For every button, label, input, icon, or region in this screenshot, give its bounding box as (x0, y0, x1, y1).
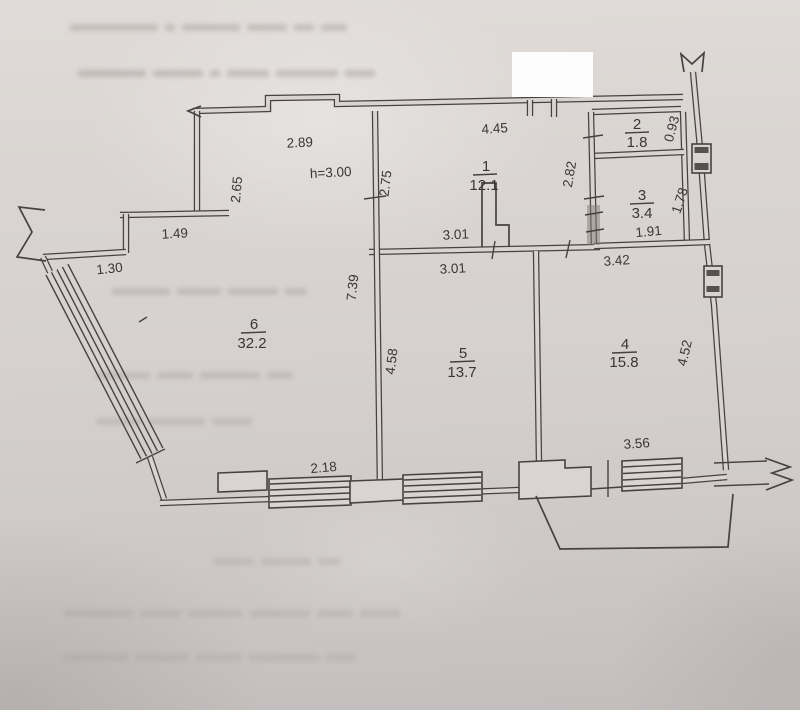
wall-step-block (218, 471, 267, 492)
redaction-box (512, 52, 593, 97)
room-5-label: 5 13.7 (447, 345, 476, 381)
duct-box (692, 144, 711, 173)
wall-pier (350, 479, 404, 503)
dim-room4-bottom-width: 3.56 (623, 435, 650, 452)
dim-room5-top-width: 3.01 (439, 260, 466, 276)
balcony-outline (536, 494, 733, 549)
wall-break-symbol (765, 458, 792, 490)
dim-room1-right-height: 2.82 (560, 160, 579, 188)
dim-room4-right-height: 4.52 (674, 338, 695, 367)
dim-room6-top-width: 2.89 (286, 134, 313, 150)
room-6-label: 6 32.2 (237, 316, 266, 352)
room-6-area: 32.2 (237, 335, 266, 352)
room-5-number: 5 (459, 345, 467, 362)
dim-room1-bottom-width: 3.01 (442, 226, 469, 242)
dim-room1-left-height: 2.75 (376, 169, 394, 197)
right-wall-extension (714, 461, 769, 486)
bottom-wall-details (218, 458, 682, 508)
dim-hall-step-width: 1.49 (161, 225, 188, 241)
wall-break-symbol (681, 53, 704, 72)
room-1-label: 1 12.1 (469, 158, 498, 194)
room-2-number: 2 (633, 116, 641, 133)
room-1-number: 1 (482, 158, 490, 175)
dim-room4-top-width: 3.42 (603, 252, 630, 269)
floor-plan-drawing: 1 12.1 2 1.8 3 3.4 4 15.8 5 13.7 6 32.2 (0, 0, 800, 710)
scanned-floor-plan-photo: 1 12.1 2 1.8 3 3.4 4 15.8 5 13.7 6 32.2 (0, 0, 800, 710)
balcony-door-threshold (591, 487, 622, 489)
dim-room6-right-height: 7.39 (344, 274, 362, 302)
room-2-label: 2 1.8 (625, 116, 649, 151)
duct-box (704, 266, 722, 297)
dimension-labels: 2.89 h=3.00 2.65 2.75 4.45 2.82 0.93 1.7… (96, 114, 695, 476)
room-3-area: 3.4 (632, 205, 653, 222)
wall-break-symbol (17, 207, 46, 261)
room-5-area: 13.7 (447, 364, 476, 381)
room-4-area: 15.8 (609, 354, 638, 371)
room-1-area: 12.1 (469, 177, 498, 194)
room-6-number: 6 (250, 316, 258, 333)
dim-room6-window-width: 2.18 (310, 459, 337, 476)
room-2-area: 1.8 (627, 134, 648, 151)
wall-pier-large (519, 460, 591, 499)
dim-room1-top-width: 4.45 (481, 120, 508, 137)
dim-room3-bottom-width: 1.91 (635, 223, 662, 240)
dim-hall-left-width: 1.30 (96, 260, 124, 278)
dim-room2-right-height: 0.93 (661, 114, 682, 143)
dim-room5-left-height: 4.58 (382, 347, 400, 375)
hatched-wall-segment (587, 205, 600, 245)
ceiling-height-label: h=3.00 (310, 164, 352, 181)
room-4-number: 4 (621, 336, 629, 353)
room-3-label: 3 3.4 (630, 187, 654, 222)
room-4-label: 4 15.8 (609, 336, 638, 371)
room-3-number: 3 (638, 187, 646, 204)
dim-room6-upper-height: 2.65 (228, 176, 245, 203)
window-diagonal (46, 264, 165, 463)
